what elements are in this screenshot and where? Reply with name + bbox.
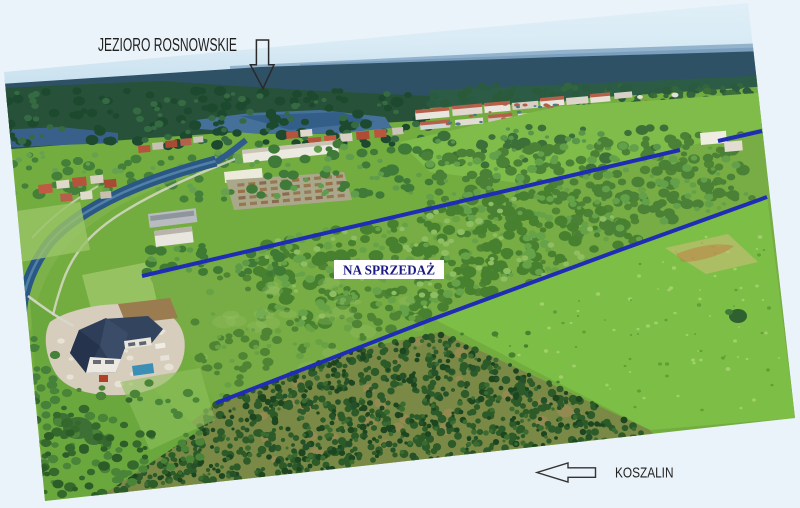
svg-text:NA SPRZEDAŻ: NA SPRZEDAŻ [343,263,435,278]
svg-text:JEZIORO ROSNOWSKIE: JEZIORO ROSNOWSKIE [98,35,237,55]
svg-text:KOSZALIN: KOSZALIN [615,465,674,482]
